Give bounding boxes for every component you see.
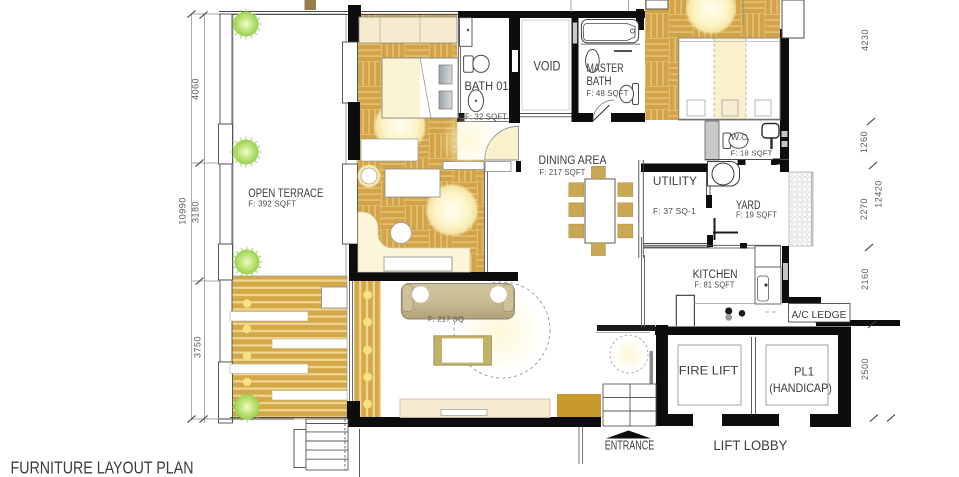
svg-text:KITCHEN: KITCHEN xyxy=(693,269,738,281)
svg-text:F: 18 SQFT: F: 18 SQFT xyxy=(731,151,774,158)
svg-text:PL1: PL1 xyxy=(794,364,814,378)
svg-text:F: 32 SQFT: F: 32 SQFT xyxy=(465,113,507,122)
svg-text:F: 217 SQFT: F: 217 SQFT xyxy=(540,168,586,177)
svg-text:F: 81 SQFT: F: 81 SQFT xyxy=(695,281,735,290)
svg-text:OPEN TERRACE: OPEN TERRACE xyxy=(248,188,323,200)
svg-text:MASTER: MASTER xyxy=(587,63,624,75)
svg-text:LIFT LOBBY: LIFT LOBBY xyxy=(713,438,787,453)
svg-text:10990: 10990 xyxy=(178,197,188,225)
svg-text:F: 217 SQ: F: 217 SQ xyxy=(428,315,464,324)
svg-text:3180: 3180 xyxy=(191,201,201,223)
svg-text:3750: 3750 xyxy=(193,336,203,358)
svg-text:4230: 4230 xyxy=(860,29,870,51)
svg-text:FURNITURE LAYOUT PLAN: FURNITURE LAYOUT PLAN xyxy=(11,458,194,477)
svg-text:2160: 2160 xyxy=(860,268,870,290)
svg-text:F: 19 SQFT: F: 19 SQFT xyxy=(736,211,777,220)
svg-text:4060: 4060 xyxy=(191,78,201,100)
svg-text:A/C LEDGE: A/C LEDGE xyxy=(792,309,847,321)
svg-text:2270: 2270 xyxy=(859,198,869,220)
svg-text:2500: 2500 xyxy=(860,358,870,380)
svg-text:FIRE LIFT: FIRE LIFT xyxy=(679,365,739,377)
svg-text:BATH 01: BATH 01 xyxy=(465,81,509,93)
svg-text:1260: 1260 xyxy=(859,131,869,153)
svg-text:DINING AREA: DINING AREA xyxy=(539,155,607,167)
svg-text:UTILITY: UTILITY xyxy=(653,176,697,188)
svg-text:F: 37 SQ-1: F: 37 SQ-1 xyxy=(653,207,696,216)
svg-text:F: 392 SQFT: F: 392 SQFT xyxy=(248,200,296,209)
svg-text:F: 48 SQFT: F: 48 SQFT xyxy=(587,89,629,98)
svg-text:VOID: VOID xyxy=(534,59,561,74)
svg-text:ENTRANCE: ENTRANCE xyxy=(605,438,655,452)
svg-text:W.C.: W.C. xyxy=(731,132,750,142)
svg-text:BATH: BATH xyxy=(587,76,612,88)
svg-text:12420: 12420 xyxy=(874,180,884,208)
svg-text:(HANDICAP): (HANDICAP) xyxy=(769,381,832,395)
